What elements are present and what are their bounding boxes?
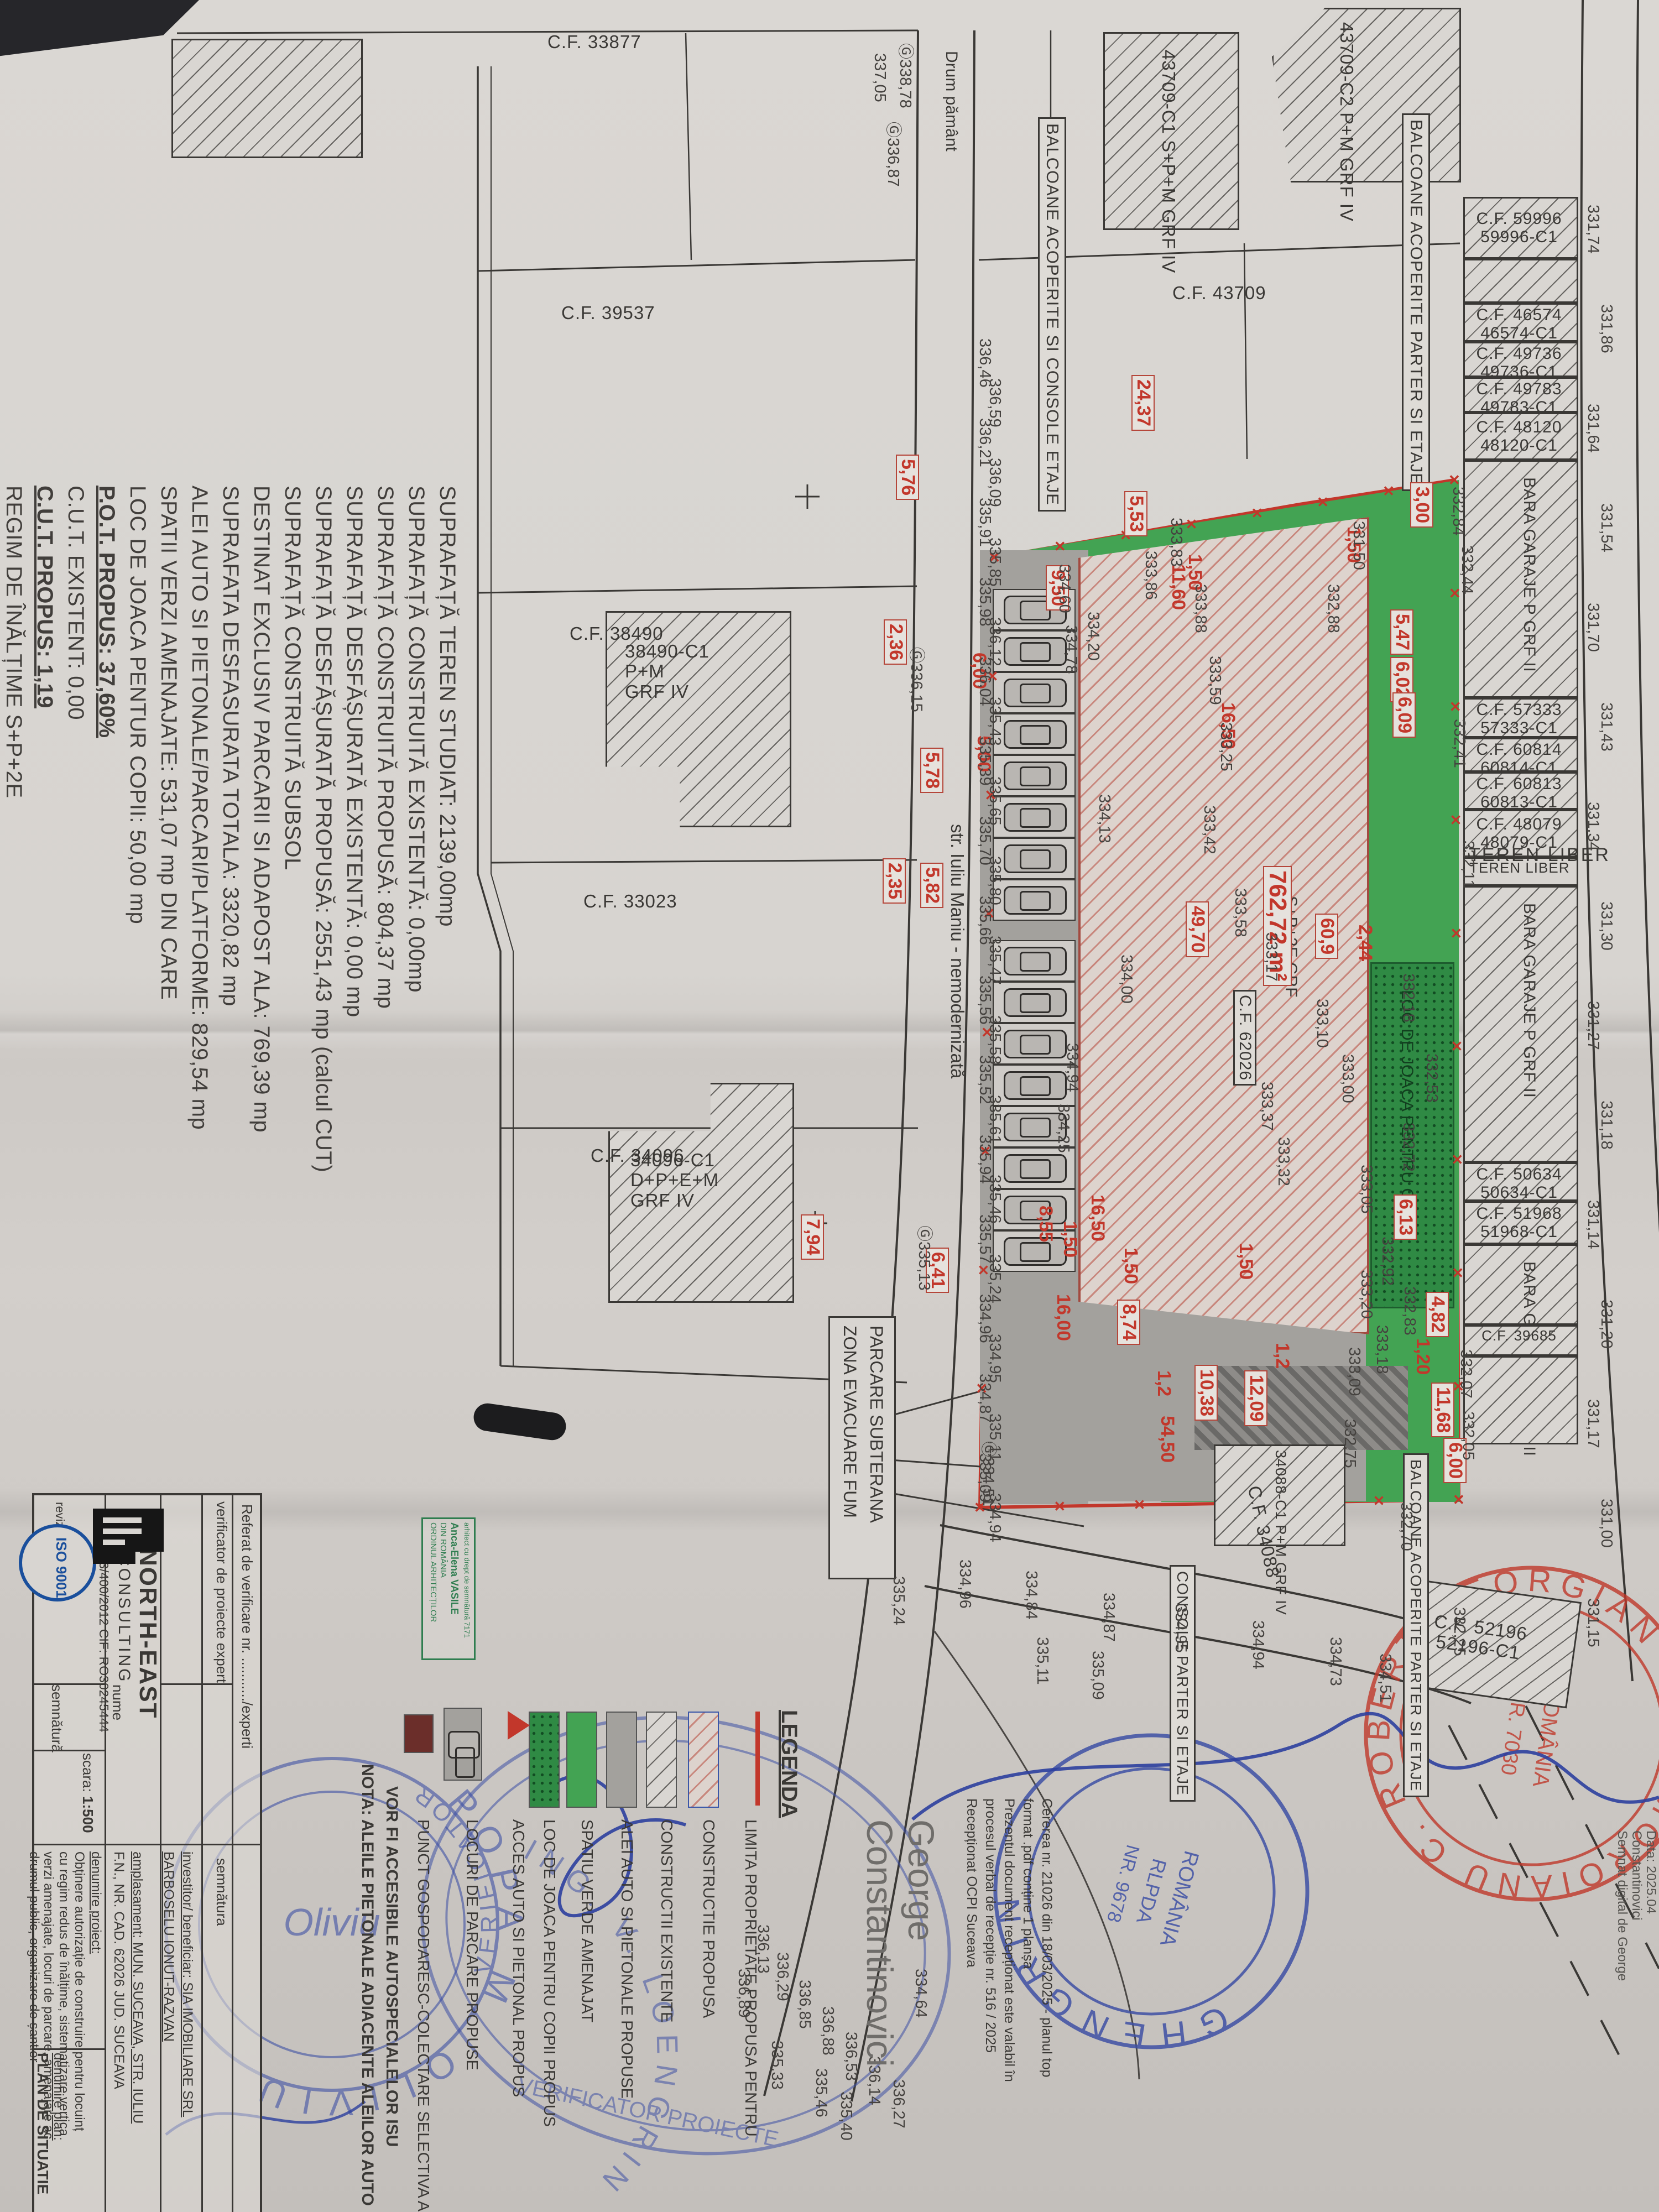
spot-elevation: 336,88 (820, 2006, 836, 2056)
dimension-label: 10,38 (1194, 1365, 1218, 1421)
legend-swatch-alley (606, 1712, 637, 1808)
spot-elevation: 331,50 (1350, 521, 1367, 570)
building-topleft (171, 39, 363, 158)
contour-elevation: 334,00 (1118, 954, 1135, 1004)
spot-elevation: 334,51 (1377, 1653, 1394, 1703)
contour-elevation: 333,05 (1358, 1165, 1375, 1214)
dimension-label: 2,35 (883, 858, 906, 904)
site-plan-photo: MOROIANU C. ROBERT GEORGIAN ROMÂNIA NR. … (0, 0, 1659, 2212)
contour-elevation: 332,83 (1401, 1286, 1418, 1335)
dirt-road-label: Drum pământ (943, 51, 961, 152)
legend-swatch-green (566, 1712, 597, 1808)
parking-stall (993, 713, 1076, 755)
car-icon (1004, 844, 1067, 873)
parking-stall (993, 879, 1076, 921)
legend-item-label: SPATIU VERDE AMENAJAT (578, 1819, 595, 2022)
indicator-line: SUPRAFAȚĂ CONSTRUITĂ SUBSOL (281, 486, 304, 870)
indicator-line: SPATII VERZI AMENAJATE: 531,07 mp DIN CA… (157, 486, 180, 1000)
spot-elevation: 332,11 (1460, 841, 1477, 889)
legend-swatch-parking (444, 1708, 482, 1781)
street-name: str. Iuliu Maniu - nemodernizată (947, 824, 967, 1078)
parcel-block: C.F. 5999659996-C1 (1463, 197, 1578, 259)
iso-9001-logo: ISO 9001 (19, 1524, 96, 1601)
parcel-block: C.F. 5196851968-C1 (1463, 1201, 1578, 1244)
dimension-label: 4,82 (1426, 1292, 1449, 1337)
spot-elevation: 335,40 (838, 2091, 854, 2141)
spot-elevation: 334,73 (1327, 1637, 1344, 1686)
geodetic-point-label: Ⓖ334,51 (980, 1441, 997, 1506)
site-cadastral-label: C.F. 62026 (1234, 990, 1257, 1086)
car-icon (1004, 803, 1067, 832)
contour-elevation: 332,92 (1379, 1237, 1396, 1286)
tb-amplasament2: F.N., NR. CAD. 62026 JUD. SUCEAVA (112, 1851, 126, 2089)
dimension-label: 16,50 (1087, 1194, 1107, 1241)
contour-elevation: 332,75 (1342, 1419, 1358, 1468)
svg-text:GHENGRIN: GHENGRIN (953, 1875, 1258, 2081)
limit-x-mark: ✕ (1054, 539, 1066, 555)
contour-elevation: 334,60 (1056, 564, 1073, 613)
parcel-label: C.F. 6081360813-C1 (1469, 775, 1569, 811)
dimension-label: 1,50 (1120, 1248, 1140, 1284)
parcel-label: C.F. 5063450634-C1 (1469, 1165, 1569, 1202)
parking-stall (993, 1147, 1076, 1189)
ocpi-line4: procesul verbal de recepție nr. 516 / 20… (983, 1798, 998, 2053)
spot-elevation: 331,20 (1598, 1300, 1615, 1349)
legend-title: LEGENDA (778, 1710, 801, 1818)
parcel-block: C.F. 4812048120-C1 (1463, 413, 1578, 460)
limit-x-mark: ✕ (1251, 505, 1263, 521)
limit-x-mark: ✕ (1449, 699, 1462, 715)
ocpi-line5: Recepționat OCPI Suceava (964, 1798, 979, 1968)
tb-firm-cif: J33/400/2012 CIF: RO30245444 (97, 1548, 111, 1732)
indicator-line: SUPRAFAȚĂ CONSTRUITĂ PROPUSĂ: 804,37 mp (374, 486, 397, 1009)
parking-stall (993, 982, 1076, 1023)
parcel-34096-label: C.F. 34096 (591, 1146, 685, 1166)
spot-elevation: 331,64 (1585, 404, 1601, 453)
dimension-label: 12,09 (1244, 1370, 1267, 1426)
tb-nume: nume (110, 1684, 125, 1720)
spot-elevation: 332,72 (1400, 1123, 1417, 1172)
building-43709-c2 (1272, 8, 1461, 182)
tb-plan-name: PLAN DE SITUATIE (35, 2053, 51, 2194)
spot-elevation: 332,25 (1451, 1607, 1468, 1656)
tb-plan-label: denumire plan: (51, 2053, 65, 2141)
contour-elevation: 333,86 (1142, 551, 1159, 600)
legend-item-label: CONSTRUCTIE PROPUSA (700, 1819, 717, 2018)
spot-elevation: 334,87 (1100, 1593, 1117, 1642)
building-34088-c1-label: 34088-C1 P+M GRF IV (1273, 1450, 1288, 1615)
parcel-43709-label: C.F. 43709 (1172, 283, 1266, 303)
ocpi-line2: format .pdf conține 1 planșa (1021, 1798, 1035, 1969)
spot-elevation: 334,96 (957, 1559, 973, 1609)
parcel-label: C.F. 5733357333-C1 (1469, 701, 1569, 737)
parcel-39537-label: C.F. 39537 (561, 303, 655, 323)
legend-swatch-limit (755, 1712, 760, 1806)
building-38490-c1-label: 38490-C1P+MGRF IV (625, 641, 709, 702)
dimension-label: 24,37 (1131, 375, 1155, 431)
limit-x-mark: ✕ (1053, 1499, 1066, 1515)
dimension-label: 8,74 (1117, 1300, 1140, 1345)
garage-label: BARA GARAJE P GRF II (1521, 903, 1538, 1098)
spot-elevation: 331,18 (1598, 1100, 1615, 1150)
spot-elevation: 332,53 (1423, 1053, 1440, 1103)
dimension-label: 5,82 (920, 863, 943, 908)
dimension-label: 16,00 (1053, 1294, 1073, 1341)
contour-elevation: 334,13 (1096, 794, 1113, 843)
limit-x-mark: ✕ (1453, 1492, 1465, 1508)
nota-line2: VOR FI ACCESIBILE AUTOSPECIALELOR ISU (383, 1786, 401, 2147)
indicator-line: ALEI AUTO SI PIETONALE/PARCARI/PLATFORME… (188, 486, 211, 1130)
contour-elevation: 333,88 (1192, 584, 1209, 633)
contour-elevation: 333,58 (1232, 888, 1249, 937)
tb-semnatura: semnătura (214, 1858, 229, 1926)
contour-elevation: 333,10 (1314, 999, 1331, 1048)
parcel-label: C.F. 39685 (1469, 1328, 1569, 1344)
parcel-block: C.F. 4978349783-C1 (1463, 377, 1578, 413)
building-43709-c2-label: 43709-C2 P+M GRF IV (1337, 22, 1356, 222)
spot-elevation: 334,84 (1023, 1571, 1040, 1620)
indicator-line: SUPRAFAȚĂ DESFĂȘURATĂ PROPUSĂ: 2551,43 m… (312, 486, 335, 1172)
tb-investitor2: BARBOSELU IONUT-RAZVAN (161, 1851, 176, 2042)
contour-elevation: 333,42 (1201, 805, 1218, 854)
balcony-label-topright: BALCOANE ACOPERITE PARTER SI ETAJE (1402, 113, 1430, 491)
parking-stall (993, 940, 1076, 982)
tb-semnatura2: semnătură (49, 1684, 64, 1752)
contour-elevation: 333,00 (1339, 1054, 1356, 1103)
limit-x-mark: ✕ (1450, 812, 1462, 828)
limit-x-mark: ✕ (1317, 494, 1329, 510)
zona-evacuare-box: ZONA EVACUARE FUM PARCARE SUBTERANA (828, 1316, 896, 1579)
contour-elevation: 333,20 (1358, 1270, 1375, 1319)
spot-elevation: 335,33 (769, 2041, 785, 2090)
contour-elevation: 333,32 (1275, 1137, 1292, 1186)
spot-elevation: 331,30 (1598, 901, 1615, 951)
parcel-label: C.F. 4978349783-C1 (1469, 380, 1569, 416)
limit-x-mark: ✕ (1451, 926, 1463, 942)
spot-elevation: 331,54 (1598, 503, 1615, 552)
spot-elevation: 335,09 (1089, 1651, 1106, 1700)
limit-x-mark: ✕ (1134, 1497, 1146, 1513)
car-icon (1004, 886, 1067, 915)
spot-elevation: 332,70 (1398, 1502, 1415, 1551)
geodetic-point-label: Ⓖ338,78 (897, 43, 914, 108)
spot-elevation: 331,27 (1585, 1001, 1601, 1050)
dimension-label: 6,13 (1394, 1194, 1417, 1240)
parking-stall (993, 796, 1076, 838)
geodetic-point-label: Ⓖ336,87 (885, 122, 901, 187)
dimension-label: 6,09 (1392, 692, 1416, 738)
nota-line1: NOTA: ALEILE PIETONALE ADIACENTE ALEILOR… (359, 1764, 377, 2206)
digital-signature-meta3: Data: 2025.04 (1644, 1830, 1658, 1914)
contour-elevation: 333,83 (1168, 518, 1185, 567)
dimension-label: 5,53 (1124, 491, 1147, 536)
parcel-label: C.F. 5999659996-C1 (1469, 210, 1569, 246)
spot-elevation: 331,86 (1598, 304, 1615, 353)
contour-elevation: 333,25 (1218, 722, 1234, 771)
spot-elevation: 332,41 (1451, 719, 1468, 768)
tb-amplasament: amplasament: MUN. SUCEAVA, STR. IULIU (131, 1851, 145, 2124)
dimension-label: 8,55 (1035, 1206, 1055, 1242)
legend-swatch-waste (404, 1714, 434, 1753)
spot-elevation: 331,15 (1585, 1598, 1601, 1647)
dimension-label: 3,00 (1410, 482, 1433, 528)
parcel-33023-label: C.F. 33023 (583, 891, 677, 911)
spot-elevation: 334,94 (1250, 1620, 1266, 1670)
dimension-label: 5,78 (920, 748, 943, 793)
hatched-parcel (1463, 259, 1578, 303)
car-icon (1004, 947, 1067, 975)
tb-firm-name: NORTH-EAST (135, 1548, 160, 1719)
tb-firm-name2: CONSULTING (116, 1554, 133, 1683)
spot-elevation: 331,34 (1585, 802, 1601, 851)
indicator-line: SUPRAFATA DESFASURATA TOTALA: 3320,82 mp (219, 486, 242, 1006)
spot-elevation: 331,43 (1598, 702, 1615, 752)
dimension-label: 2,36 (884, 619, 907, 665)
limit-x-mark: ✕ (1186, 517, 1198, 533)
spot-elevation: 335,24 (890, 1576, 907, 1625)
indicator-line: DESTINAT EXCLUSIV PARCARII SI ADAPOST AL… (250, 486, 273, 1133)
limit-x-mark: ✕ (1448, 472, 1460, 488)
garage-block: BARA GARAJE P GRF II (1463, 460, 1578, 698)
parking-stall (993, 672, 1076, 713)
parcel-label: C.F. 4657446574-C1 (1469, 306, 1569, 342)
spot-elevation: 332,05 (1460, 1411, 1477, 1460)
parcel-block: C.F. 5063450634-C1 (1463, 1162, 1578, 1201)
indicator-line: REGIM DE ÎNĂLȚIME S+P+2E (2, 486, 25, 799)
car-icon (1004, 679, 1067, 707)
limit-x-mark: ✕ (1373, 1493, 1385, 1509)
contour-elevation: 334,25 (1055, 1104, 1072, 1153)
ocpi-line3: Prezentul document recepționat este vala… (1002, 1798, 1016, 2082)
contour-elevation: 333,18 (1374, 1325, 1390, 1374)
parcel-block: C.F. 4973649736-C1 (1463, 342, 1578, 377)
spot-elevation: 332,18 (1400, 973, 1417, 1022)
car-icon (1004, 637, 1067, 666)
parcel-38490-label: C.F. 38490 (570, 624, 664, 644)
car-icon (1004, 1030, 1067, 1058)
contour-elevation: 334,20 (1085, 612, 1102, 661)
contour-elevation: 333,09 (1346, 1347, 1363, 1396)
geodetic-point-label: Ⓖ336,15 (908, 647, 925, 712)
dimension-label: 5,47 (1390, 609, 1413, 655)
legend-item-label: PUNCT GOSPODARESC-COLECTARE SELECTIVA A … (415, 1819, 431, 2212)
dimension-label: 1,2 (1154, 1370, 1173, 1396)
legend-item-label: CONSTRUCTII EXISTENTE (658, 1819, 675, 2022)
parcel-block: C.F. 6081460814-C1 (1463, 738, 1578, 772)
parcel-33877-label: C.F. 33877 (547, 32, 641, 52)
limit-x-mark: ✕ (1452, 1265, 1464, 1281)
parcel-block: C.F. 6081360813-C1 (1463, 772, 1578, 810)
parcel-block: C.F. 4657446574-C1 (1463, 303, 1578, 342)
dimension-label: 7,94 (801, 1214, 824, 1260)
dimension-label: 60,9 (1315, 914, 1338, 959)
indicator-line: SUPRAFAȚĂ TEREN STUDIAT: 2139,00mp (436, 486, 459, 927)
spot-elevation: 331,14 (1585, 1200, 1601, 1249)
oar-architect-stamp: ORDINUL ARHITECȚILOR DIN ROMÂNIA Anca-El… (421, 1517, 476, 1660)
car-icon (1004, 720, 1067, 749)
garage-block: BARA GARAJE P GRF II (1463, 1244, 1578, 1325)
dimension-label: 11,68 (1431, 1383, 1454, 1437)
contour-elevation: 333,59 (1207, 656, 1223, 705)
digital-signature-meta2: Constantinovici (1630, 1830, 1644, 1921)
parking-stall (993, 838, 1076, 879)
spot-elevation: 336,29 (774, 1952, 791, 2001)
parcel-block: C.F. 5733357333-C1 (1463, 698, 1578, 738)
tb-investitor: investitor/ beneficiar: SIA IMOBILIARE S… (180, 1851, 195, 2117)
legend-swatch-playground (529, 1712, 560, 1808)
spot-elevation: 335,11 (1034, 1637, 1051, 1685)
legend-item-label: ALEI AUTO SI PIETONALE PROPUSE (618, 1819, 635, 2099)
spot-elevation: 336,85 (796, 1980, 813, 2029)
car-icon (1004, 1154, 1067, 1183)
car-icon (1004, 1071, 1067, 1100)
spot-elevation: 332,84 (1450, 487, 1467, 536)
tb-referat: Referat de verificare nr. .........../ex… (239, 1504, 254, 1749)
spot-elevation: 331,70 (1585, 603, 1601, 652)
right-parcels-column: C.F. 5999659996-C1C.F. 4657446574-C1C.F.… (1463, 0, 1578, 1444)
digital-signature-meta1: Semnat digital de George (1615, 1830, 1629, 1981)
spot-elevation: 335,46 (813, 2068, 830, 2117)
dimension-label: 1,20 (1412, 1338, 1432, 1375)
indicator-line: C.U.T. PROPUS: 1,19 (33, 486, 56, 708)
indicator-line: C.U.T. EXISTENT: 0,00 (64, 486, 87, 720)
tb-proiect-5: drumul public, organizare de șantier (27, 1851, 41, 2063)
spot-elevation: 332,07 (1458, 1349, 1474, 1399)
spot-elevation: 331,17 (1585, 1399, 1601, 1448)
spot-elevation: 334,64 (912, 1969, 929, 2018)
contour-elevation: 333,17 (1263, 932, 1280, 982)
dimension-label: 5,76 (896, 455, 919, 500)
tb-verificator: verificator de proiecte expert (214, 1501, 229, 1683)
limit-x-mark: ✕ (1451, 1152, 1463, 1168)
legend-item-label: LOCURI DE PARCARE PROPUSE (463, 1819, 480, 2070)
spot-elevation: 334,95 (1172, 1604, 1189, 1653)
legend-item-label: ACCES AUTO SI PIETONAL PROPUS (510, 1819, 526, 2097)
building-43709-c1-label: 43709-C1 S+P+M GRF IV (1159, 50, 1178, 273)
parcel-52196: C.F. 5219652196-C1 (1407, 1580, 1582, 1709)
legend-swatch-existing (646, 1712, 677, 1808)
car-icon (1004, 988, 1067, 1017)
console-label-bottom: CONSOLE PARTER SI ETAJE (1170, 1565, 1196, 1802)
contour-elevation: 334,94 (1064, 1043, 1081, 1092)
legend-swatch-access (508, 1711, 530, 1740)
dimension-label: 49,70 (1186, 901, 1209, 957)
parcel-label: C.F. 4973649736-C1 (1469, 345, 1569, 381)
digital-signature-name2: Constantinovici (860, 1819, 899, 2067)
dimension-label: 54,50 (1157, 1416, 1177, 1463)
tb-scara: scara: 1:500 (80, 1753, 95, 1833)
dimension-label: 1,50 (1060, 1221, 1079, 1258)
parcel-label: C.F. 4812048120-C1 (1469, 418, 1569, 455)
geodetic-point-label: Ⓖ335,13 (916, 1225, 932, 1291)
limit-x-mark: ✕ (1383, 483, 1395, 499)
parcel-label: C.F. 5196851968-C1 (1469, 1204, 1569, 1241)
parcel-block: C.F. 39685 (1463, 1325, 1578, 1356)
tb-proiect-label: denumire proiect: (89, 1851, 103, 1954)
spot-elevation: 336,27 (890, 2079, 907, 2128)
spot-elevation: 331,00 (1598, 1499, 1615, 1548)
dimension-label: 1,50 (1235, 1243, 1255, 1280)
ocpi-line1: Cererea nr. 21026 din 18/03/2025 - planu… (1040, 1798, 1054, 2078)
contour-elevation: 334,78 (1063, 625, 1079, 674)
spot-elevation: 337,05 (872, 53, 888, 102)
legend-item-label: LOC DE JOACA PENTRU COPII PROPUS (541, 1819, 557, 2127)
legend-swatch-proposed (688, 1712, 719, 1808)
garage-block: BARA GARAJE P GRF II (1463, 886, 1578, 1162)
legend-item-label: LIMITA PROPRIETATE PROPUSA PENTRU (742, 1819, 759, 2137)
hatched-parcel (1463, 1356, 1578, 1444)
parking-ramp (1194, 1366, 1408, 1450)
car-icon (1004, 761, 1067, 790)
contour-elevation: 332,88 (1325, 584, 1342, 633)
spot-elevation: 336,53 (843, 2032, 859, 2081)
indicator-line: SUPRAFAȚĂ DESFĂȘURATĂ EXISTENTĂ: 0,00 mp (343, 486, 366, 1018)
indicator-line: LOC DE JOACA PENTUR COPII: 50,00 mp (126, 486, 149, 924)
indicator-line: SUPRAFAȚĂ CONSTRUITĂ EXISTENTĂ: 0,00mp (405, 486, 428, 993)
contour-elevation: 333,37 (1259, 1082, 1275, 1131)
dimension-label: 2,44 (1355, 925, 1375, 961)
dimension-label: 1,2 (1272, 1343, 1292, 1369)
indicator-line: P.O.T. PROPUS: 37,60% (95, 486, 118, 738)
spot-elevation: 331,74 (1585, 205, 1601, 254)
car-icon (448, 1731, 480, 1759)
parking-stall (993, 755, 1076, 796)
digital-signature-name1: George (902, 1819, 940, 1941)
limit-x-mark: ✕ (1451, 1039, 1463, 1055)
garage-label: BARA GARAJE P GRF II (1521, 477, 1538, 672)
spot-elevation: 332,44 (1459, 545, 1475, 594)
balcony-label-left: BALCOANE ACOPERITE SI CONSOLE ETAJE (1038, 117, 1066, 512)
tb-proiect-2: Obținere autorizație de construire pentr… (72, 1851, 86, 2131)
